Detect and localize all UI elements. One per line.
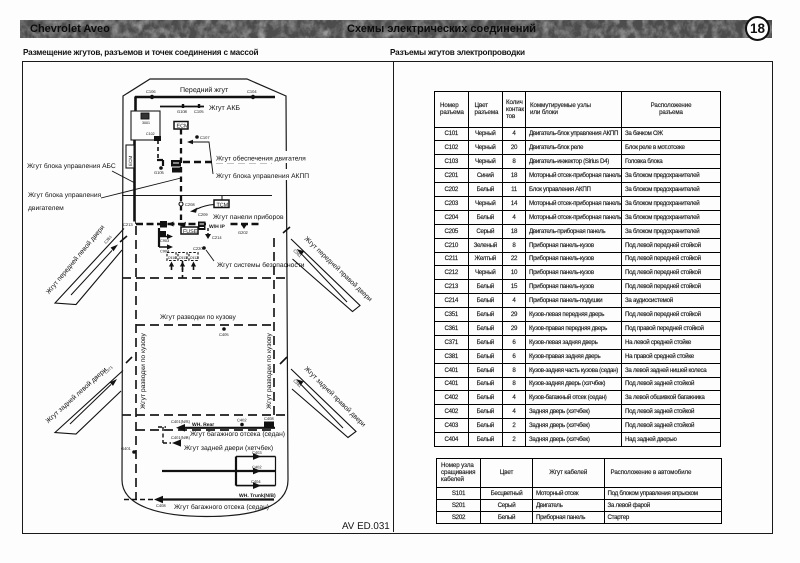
svg-text:C106: C106 bbox=[146, 89, 156, 94]
svg-text:Жгут разводки по кузову: Жгут разводки по кузову bbox=[160, 314, 236, 321]
svg-text:C912: C912 bbox=[190, 256, 199, 260]
svg-text:C903: C903 bbox=[160, 239, 169, 243]
svg-text:3001: 3001 bbox=[142, 121, 150, 125]
svg-text:C911: C911 bbox=[179, 256, 187, 260]
svg-text:C214: C214 bbox=[212, 235, 222, 240]
svg-text:C408: C408 bbox=[156, 503, 166, 508]
svg-text:Жгут обеспечения двигателя: Жгут обеспечения двигателя bbox=[216, 156, 306, 163]
svg-text:W/H IP: W/H IP bbox=[209, 224, 225, 230]
svg-text:Жгут передней левой двери: Жгут передней левой двери bbox=[45, 224, 106, 296]
svg-text:C351: C351 bbox=[103, 233, 113, 244]
svg-text:WH. Trunk(N/B): WH. Trunk(N/B) bbox=[239, 493, 276, 499]
svg-text:G105: G105 bbox=[154, 170, 165, 175]
svg-text:ECM: ECM bbox=[177, 124, 189, 130]
svg-text:C401(N/B): C401(N/B) bbox=[171, 435, 191, 440]
svg-text:G108: G108 bbox=[177, 109, 188, 114]
svg-text:Жгут системы безопасности: Жгут системы безопасности bbox=[217, 262, 305, 269]
svg-text:ECM: ECM bbox=[128, 156, 133, 166]
svg-text:C107: C107 bbox=[200, 135, 210, 140]
svg-text:C104: C104 bbox=[247, 89, 257, 94]
svg-text:C408: C408 bbox=[264, 416, 274, 421]
svg-text:TCM: TCM bbox=[217, 202, 229, 208]
svg-text:WH. Rear: WH. Rear bbox=[192, 422, 214, 428]
svg-text:C105: C105 bbox=[194, 109, 204, 114]
svg-text:C213: C213 bbox=[123, 222, 133, 227]
svg-text:Жгут разводки по кузову: Жгут разводки по кузову bbox=[266, 333, 273, 409]
svg-text:G401: G401 bbox=[121, 446, 132, 451]
svg-text:Жгут АКБ: Жгут АКБ bbox=[209, 105, 240, 112]
svg-text:C371: C371 bbox=[103, 364, 114, 375]
svg-text:Жгут багажного отсека (седан): Жгут багажного отсека (седан) bbox=[190, 431, 285, 438]
svg-text:G202: G202 bbox=[238, 230, 249, 235]
svg-text:Жгут блока управления: Жгут блока управления bbox=[28, 192, 102, 199]
svg-text:Жгут блока управления АБС: Жгут блока управления АБС bbox=[27, 163, 116, 170]
svg-text:AV ED.031: AV ED.031 bbox=[342, 521, 390, 532]
svg-text:C209: C209 bbox=[198, 212, 208, 217]
svg-text:Передний жгут: Передний жгут bbox=[180, 86, 229, 94]
svg-text:C402: C402 bbox=[237, 418, 247, 423]
svg-text:C402: C402 bbox=[252, 465, 262, 470]
svg-text:C910: C910 bbox=[168, 256, 177, 260]
svg-text:C208: C208 bbox=[185, 202, 195, 207]
svg-text:C404: C404 bbox=[251, 479, 261, 484]
svg-text:Жгут панели приборов: Жгут панели приборов bbox=[213, 214, 284, 221]
svg-text:двигателем: двигателем bbox=[28, 205, 64, 212]
svg-text:Жгут разводки по кузову: Жгут разводки по кузову bbox=[140, 333, 147, 409]
svg-text:Жгут багажного отсека (седан): Жгут багажного отсека (седан) bbox=[174, 504, 269, 511]
svg-text:C220: C220 bbox=[193, 246, 203, 251]
svg-text:C405: C405 bbox=[219, 332, 229, 337]
svg-text:C403: C403 bbox=[252, 450, 262, 455]
svg-text:C102: C102 bbox=[146, 132, 155, 136]
svg-text:FUSE: FUSE bbox=[183, 229, 198, 235]
svg-text:Жгут блока управления АКПП: Жгут блока управления АКПП bbox=[216, 173, 309, 180]
svg-text:C401(N/S): C401(N/S) bbox=[171, 419, 191, 424]
